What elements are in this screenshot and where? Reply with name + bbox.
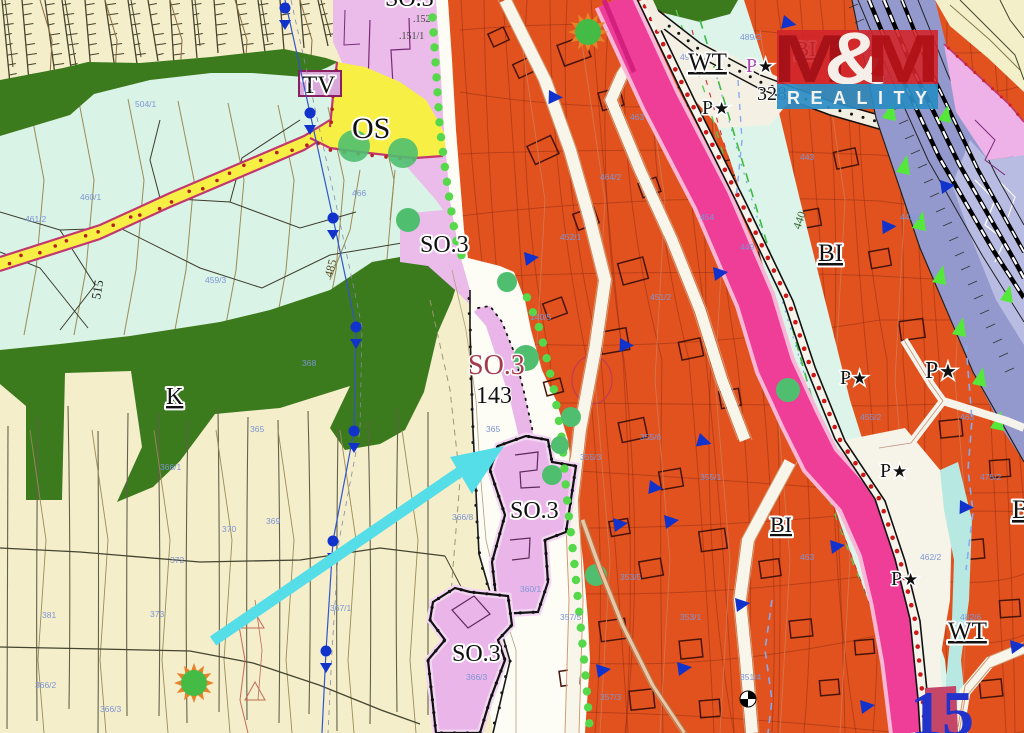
svg-text:381: 381 [42,610,56,620]
svg-text:SO.3: SO.3 [510,498,559,524]
svg-text:455/2: 455/2 [860,412,882,422]
svg-text:351/4: 351/4 [740,672,762,682]
svg-text:463: 463 [960,412,974,422]
svg-text:464/2: 464/2 [600,172,622,182]
svg-text:489/2: 489/2 [740,32,762,42]
svg-text:445/1: 445/1 [900,212,922,222]
svg-text:369: 369 [266,516,280,526]
svg-text:463: 463 [630,112,644,122]
svg-text:OS: OS [352,112,390,145]
svg-text:P: P [891,568,902,590]
svg-text:365: 365 [486,424,500,434]
svg-text:443: 443 [800,152,814,162]
svg-text:373: 373 [150,609,164,619]
svg-text:366/1: 366/1 [160,462,182,472]
svg-text:370: 370 [222,524,236,534]
svg-text:TV: TV [302,72,335,99]
svg-text:SO.3: SO.3 [420,232,469,258]
svg-text:★: ★ [939,361,957,383]
svg-text:BI: BI [818,240,843,267]
svg-text:P: P [746,55,757,77]
svg-text:P: P [702,97,713,119]
svg-text:357/3: 357/3 [600,692,622,702]
svg-text:P: P [925,358,938,384]
svg-text:★: ★ [714,99,729,118]
svg-text:★: ★ [758,57,773,76]
svg-text:451/2: 451/2 [650,292,672,302]
svg-text:353/5: 353/5 [620,572,642,582]
svg-text:.152: .152 [413,14,431,25]
svg-text:★: ★ [903,570,918,589]
svg-text:366/8: 366/8 [452,512,474,522]
svg-text:463: 463 [800,552,814,562]
svg-text:BI: BI [1012,495,1024,524]
svg-text:461/2: 461/2 [25,214,47,224]
svg-text:372: 372 [170,555,184,565]
svg-text:★: ★ [852,369,867,388]
svg-text:360/1: 360/1 [520,584,542,594]
svg-text:475/2: 475/2 [980,472,1002,482]
svg-text:460/1: 460/1 [80,192,102,202]
svg-text:368: 368 [302,358,316,368]
svg-text:WT: WT [948,618,987,645]
svg-text:367/1: 367/1 [330,603,352,613]
svg-text:365: 365 [250,424,264,434]
svg-text:366/3: 366/3 [466,672,488,682]
svg-text:355/1: 355/1 [700,472,722,482]
svg-text:366/2: 366/2 [35,680,57,690]
svg-text:355/3: 355/3 [580,452,602,462]
svg-text:357/5: 357/5 [560,612,582,622]
svg-text:SO.3: SO.3 [452,641,501,667]
svg-text:SO.3: SO.3 [385,0,434,12]
svg-text:P: P [840,367,851,389]
svg-text:366/3: 366/3 [100,704,122,714]
svg-text:459/3: 459/3 [205,275,227,285]
svg-text:143: 143 [476,383,512,409]
svg-text:BI: BI [770,512,792,537]
svg-text:K: K [166,384,184,410]
svg-text:466: 466 [352,188,366,198]
svg-text:355/6: 355/6 [640,432,662,442]
svg-text:.151/1: .151/1 [399,31,424,42]
svg-text:140/5: 140/5 [530,312,552,322]
svg-text:★: ★ [892,462,907,481]
svg-text:462/2: 462/2 [920,552,942,562]
svg-text:449: 449 [740,242,754,252]
svg-text:15: 15 [910,678,974,733]
svg-text:452/1: 452/1 [560,232,582,242]
svg-text:SO.3: SO.3 [468,350,525,381]
svg-text:353/1: 353/1 [680,612,702,622]
svg-text:WT: WT [688,49,727,76]
svg-text:454: 454 [700,212,714,222]
svg-text:504/1: 504/1 [135,99,157,109]
svg-text:P: P [880,460,891,482]
